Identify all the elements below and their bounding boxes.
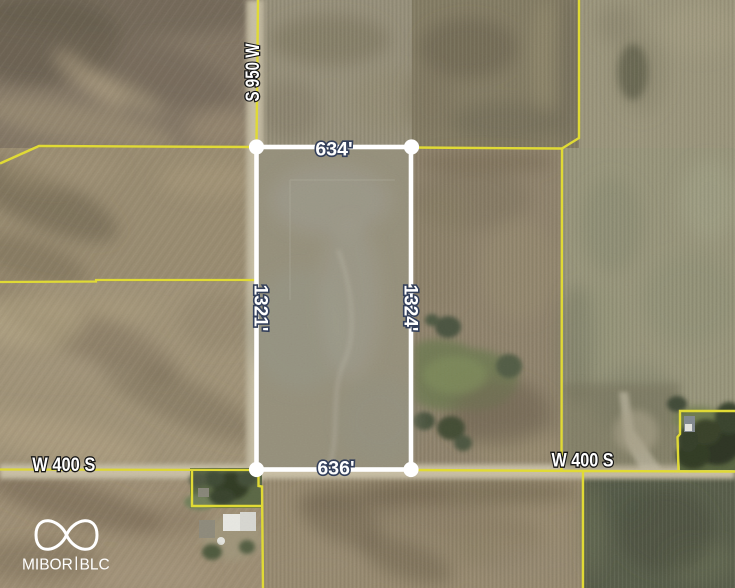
svg-text:636': 636' — [317, 458, 354, 480]
svg-text:1321': 1321' — [250, 285, 271, 332]
svg-text:634': 634' — [315, 139, 352, 161]
svg-text:BLC: BLC — [80, 557, 110, 574]
svg-text:W 400 S: W 400 S — [32, 455, 95, 476]
svg-text:S 950 W: S 950 W — [243, 43, 264, 101]
svg-text:MIBOR: MIBOR — [22, 557, 73, 574]
svg-text:1324': 1324' — [400, 285, 421, 332]
svg-text:W 400 S: W 400 S — [552, 451, 614, 472]
